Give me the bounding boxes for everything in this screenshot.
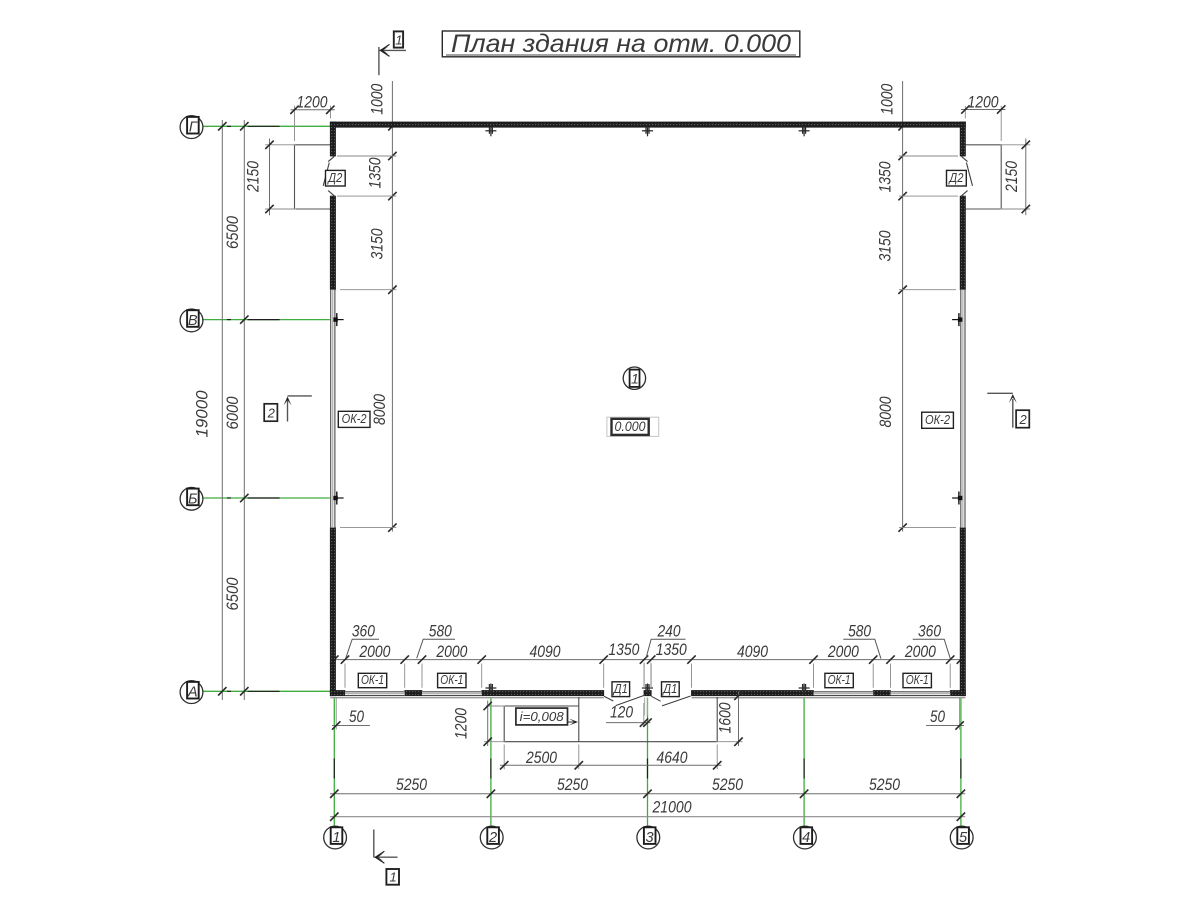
svg-text:2: 2 bbox=[488, 830, 497, 846]
svg-text:1: 1 bbox=[631, 372, 639, 388]
svg-text:360: 360 bbox=[352, 622, 375, 640]
svg-text:5250: 5250 bbox=[712, 776, 743, 794]
svg-text:6000: 6000 bbox=[224, 397, 242, 430]
svg-text:1000: 1000 bbox=[878, 84, 896, 115]
svg-text:Г: Г bbox=[189, 120, 198, 136]
svg-text:1000: 1000 bbox=[368, 84, 386, 115]
svg-text:ОК-1: ОК-1 bbox=[440, 672, 463, 687]
svg-text:5250: 5250 bbox=[869, 776, 900, 794]
svg-text:2: 2 bbox=[267, 405, 276, 420]
svg-text:19000: 19000 bbox=[194, 391, 212, 438]
svg-text:1: 1 bbox=[332, 830, 340, 846]
svg-text:А: А bbox=[187, 685, 198, 701]
svg-text:ОК-1: ОК-1 bbox=[906, 672, 929, 687]
svg-text:2000: 2000 bbox=[827, 643, 859, 661]
svg-text:1200: 1200 bbox=[968, 93, 999, 111]
svg-text:21000: 21000 bbox=[652, 799, 692, 817]
svg-text:3150: 3150 bbox=[877, 231, 895, 262]
svg-text:1: 1 bbox=[389, 869, 396, 884]
svg-text:6500: 6500 bbox=[224, 216, 242, 249]
svg-text:4090: 4090 bbox=[737, 643, 768, 661]
svg-text:5250: 5250 bbox=[557, 776, 588, 794]
svg-text:ОК-1: ОК-1 bbox=[361, 672, 384, 687]
svg-text:1350: 1350 bbox=[877, 162, 895, 193]
svg-text:i=0,008: i=0,008 bbox=[520, 709, 565, 724]
svg-text:4640: 4640 bbox=[657, 749, 688, 767]
svg-text:5: 5 bbox=[959, 830, 968, 846]
svg-text:50: 50 bbox=[349, 708, 364, 726]
svg-text:Д1: Д1 bbox=[662, 681, 678, 696]
svg-text:2000: 2000 bbox=[904, 643, 936, 661]
svg-text:3: 3 bbox=[646, 830, 654, 846]
svg-text:1600: 1600 bbox=[717, 703, 735, 734]
svg-text:Д2: Д2 bbox=[948, 170, 964, 185]
svg-text:50: 50 bbox=[930, 708, 945, 726]
svg-text:580: 580 bbox=[429, 622, 452, 640]
svg-text:0.000: 0.000 bbox=[615, 419, 646, 434]
svg-text:2150: 2150 bbox=[244, 161, 262, 193]
svg-text:ОК-2: ОК-2 bbox=[342, 411, 368, 426]
svg-text:2500: 2500 bbox=[525, 749, 557, 767]
svg-text:8000: 8000 bbox=[371, 394, 389, 425]
svg-text:8000: 8000 bbox=[877, 397, 895, 428]
svg-text:ОК-1: ОК-1 bbox=[828, 672, 851, 687]
svg-text:3150: 3150 bbox=[368, 229, 386, 260]
svg-text:2000: 2000 bbox=[436, 643, 468, 661]
svg-text:ОК-2: ОК-2 bbox=[925, 412, 951, 427]
svg-text:В: В bbox=[188, 313, 198, 329]
svg-text:240: 240 bbox=[657, 622, 681, 640]
svg-text:1200: 1200 bbox=[297, 94, 328, 112]
svg-text:2150: 2150 bbox=[1003, 161, 1021, 193]
svg-text:2: 2 bbox=[1018, 412, 1027, 427]
svg-text:360: 360 bbox=[918, 622, 941, 640]
svg-text:4090: 4090 bbox=[530, 643, 561, 661]
svg-text:1350: 1350 bbox=[608, 641, 639, 659]
svg-text:Б: Б bbox=[188, 491, 198, 507]
svg-text:1: 1 bbox=[395, 32, 402, 47]
svg-text:Д1: Д1 bbox=[612, 681, 628, 696]
svg-text:1200: 1200 bbox=[453, 708, 471, 739]
svg-text:2000: 2000 bbox=[359, 643, 391, 661]
svg-text:580: 580 bbox=[848, 622, 871, 640]
svg-text:1350: 1350 bbox=[656, 641, 687, 659]
svg-text:4: 4 bbox=[802, 830, 810, 846]
svg-text:1350: 1350 bbox=[367, 158, 385, 189]
svg-text:План здания на отм. 0.000: План здания на отм. 0.000 bbox=[451, 30, 791, 58]
svg-text:Д2: Д2 bbox=[327, 170, 343, 185]
svg-text:6500: 6500 bbox=[224, 578, 242, 611]
svg-text:120: 120 bbox=[610, 704, 633, 722]
svg-text:5250: 5250 bbox=[396, 776, 427, 794]
